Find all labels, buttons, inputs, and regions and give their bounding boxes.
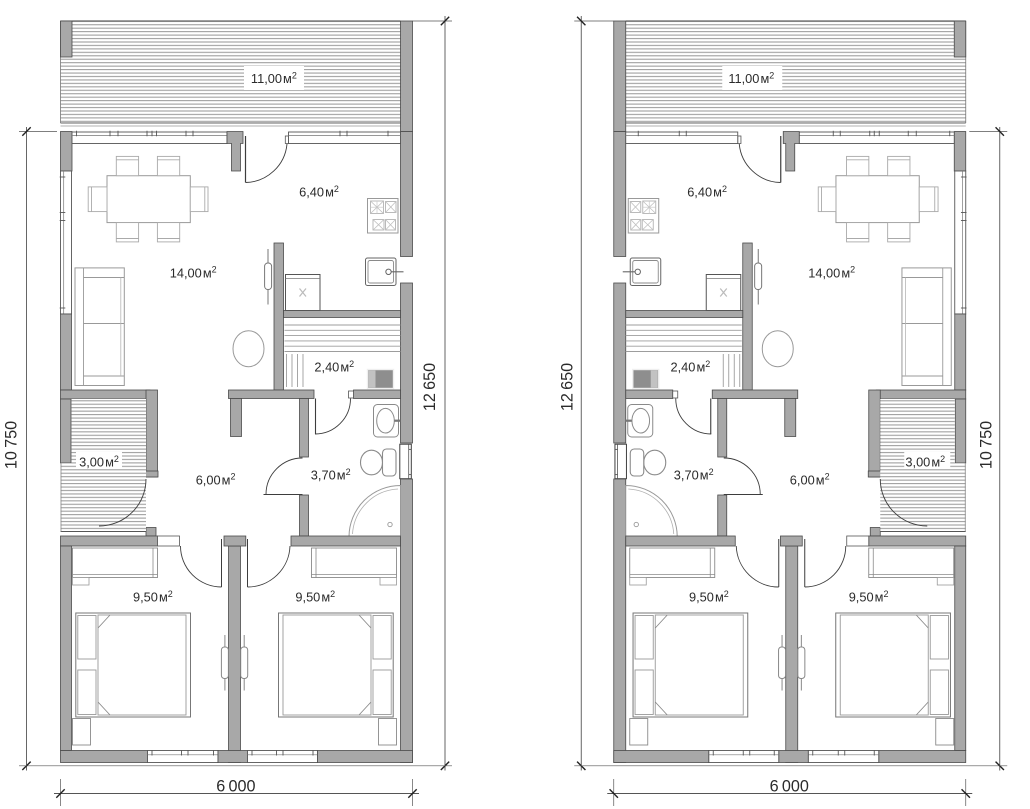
svg-text:6,00 м2: 6,00 м2 [196,472,236,488]
svg-text:3,00 м2: 3,00 м2 [905,454,945,470]
svg-text:9,50 м2: 9,50 м2 [849,589,889,605]
svg-text:6 000: 6 000 [770,777,809,795]
svg-text:10 750: 10 750 [978,421,996,469]
svg-text:2,40 м2: 2,40 м2 [314,359,354,375]
svg-text:6,00 м2: 6,00 м2 [790,472,830,488]
svg-text:11,00 м2: 11,00 м2 [728,70,774,86]
svg-text:3,00 м2: 3,00 м2 [79,454,119,470]
svg-text:6,40 м2: 6,40 м2 [687,184,727,200]
svg-text:12 650: 12 650 [421,363,439,411]
svg-text:6,40 м2: 6,40 м2 [299,184,339,200]
svg-text:14,00 м2: 14,00 м2 [808,265,855,281]
svg-text:9,50 м2: 9,50 м2 [689,589,729,605]
svg-text:14,00 м2: 14,00 м2 [170,265,217,281]
svg-text:2,40 м2: 2,40 м2 [671,359,711,375]
svg-text:10 750: 10 750 [3,421,21,469]
svg-text:11,00 м2: 11,00 м2 [251,70,297,86]
svg-text:3,70 м2: 3,70 м2 [311,467,351,483]
svg-text:9,50 м2: 9,50 м2 [133,589,173,605]
svg-text:12 650: 12 650 [559,363,577,411]
svg-text:9,50 м2: 9,50 м2 [295,589,335,605]
svg-text:6 000: 6 000 [216,777,255,795]
svg-text:3,70 м2: 3,70 м2 [674,467,714,483]
